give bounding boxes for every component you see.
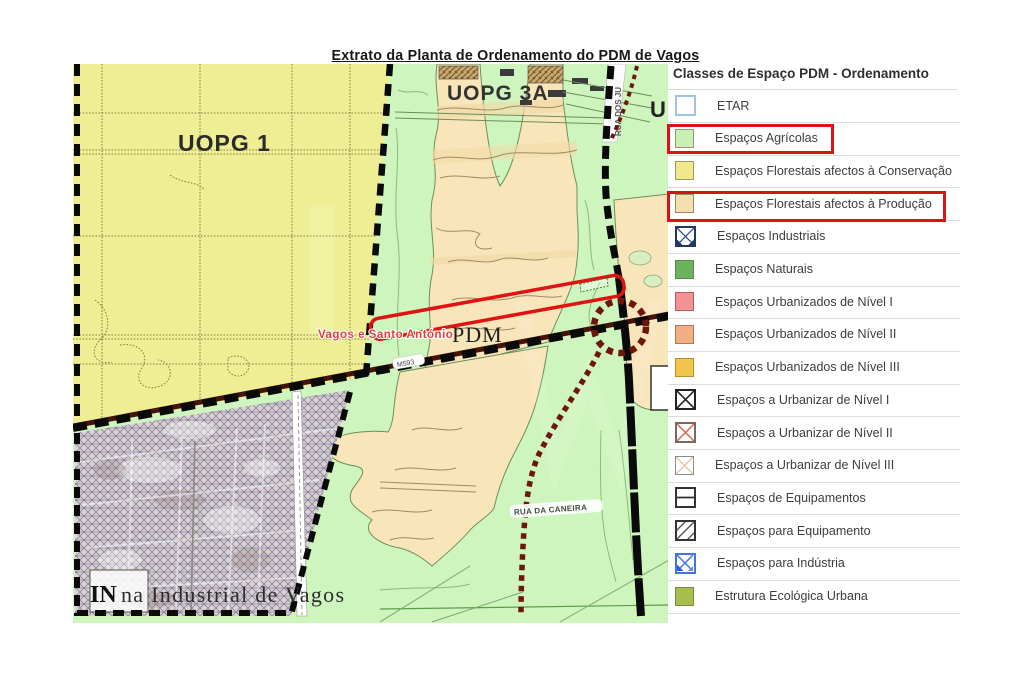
svg-text:U: U — [650, 97, 666, 122]
svg-text:UOPG 1: UOPG 1 — [178, 130, 271, 156]
svg-text:Vagos e Santo António: Vagos e Santo António — [318, 329, 453, 341]
svg-text:na Industrial de Vagos: na Industrial de Vagos — [121, 582, 345, 607]
svg-text:UOPG 3A: UOPG 3A — [447, 82, 549, 105]
svg-text:PDM: PDM — [452, 322, 503, 347]
svg-text:IN: IN — [90, 582, 117, 608]
